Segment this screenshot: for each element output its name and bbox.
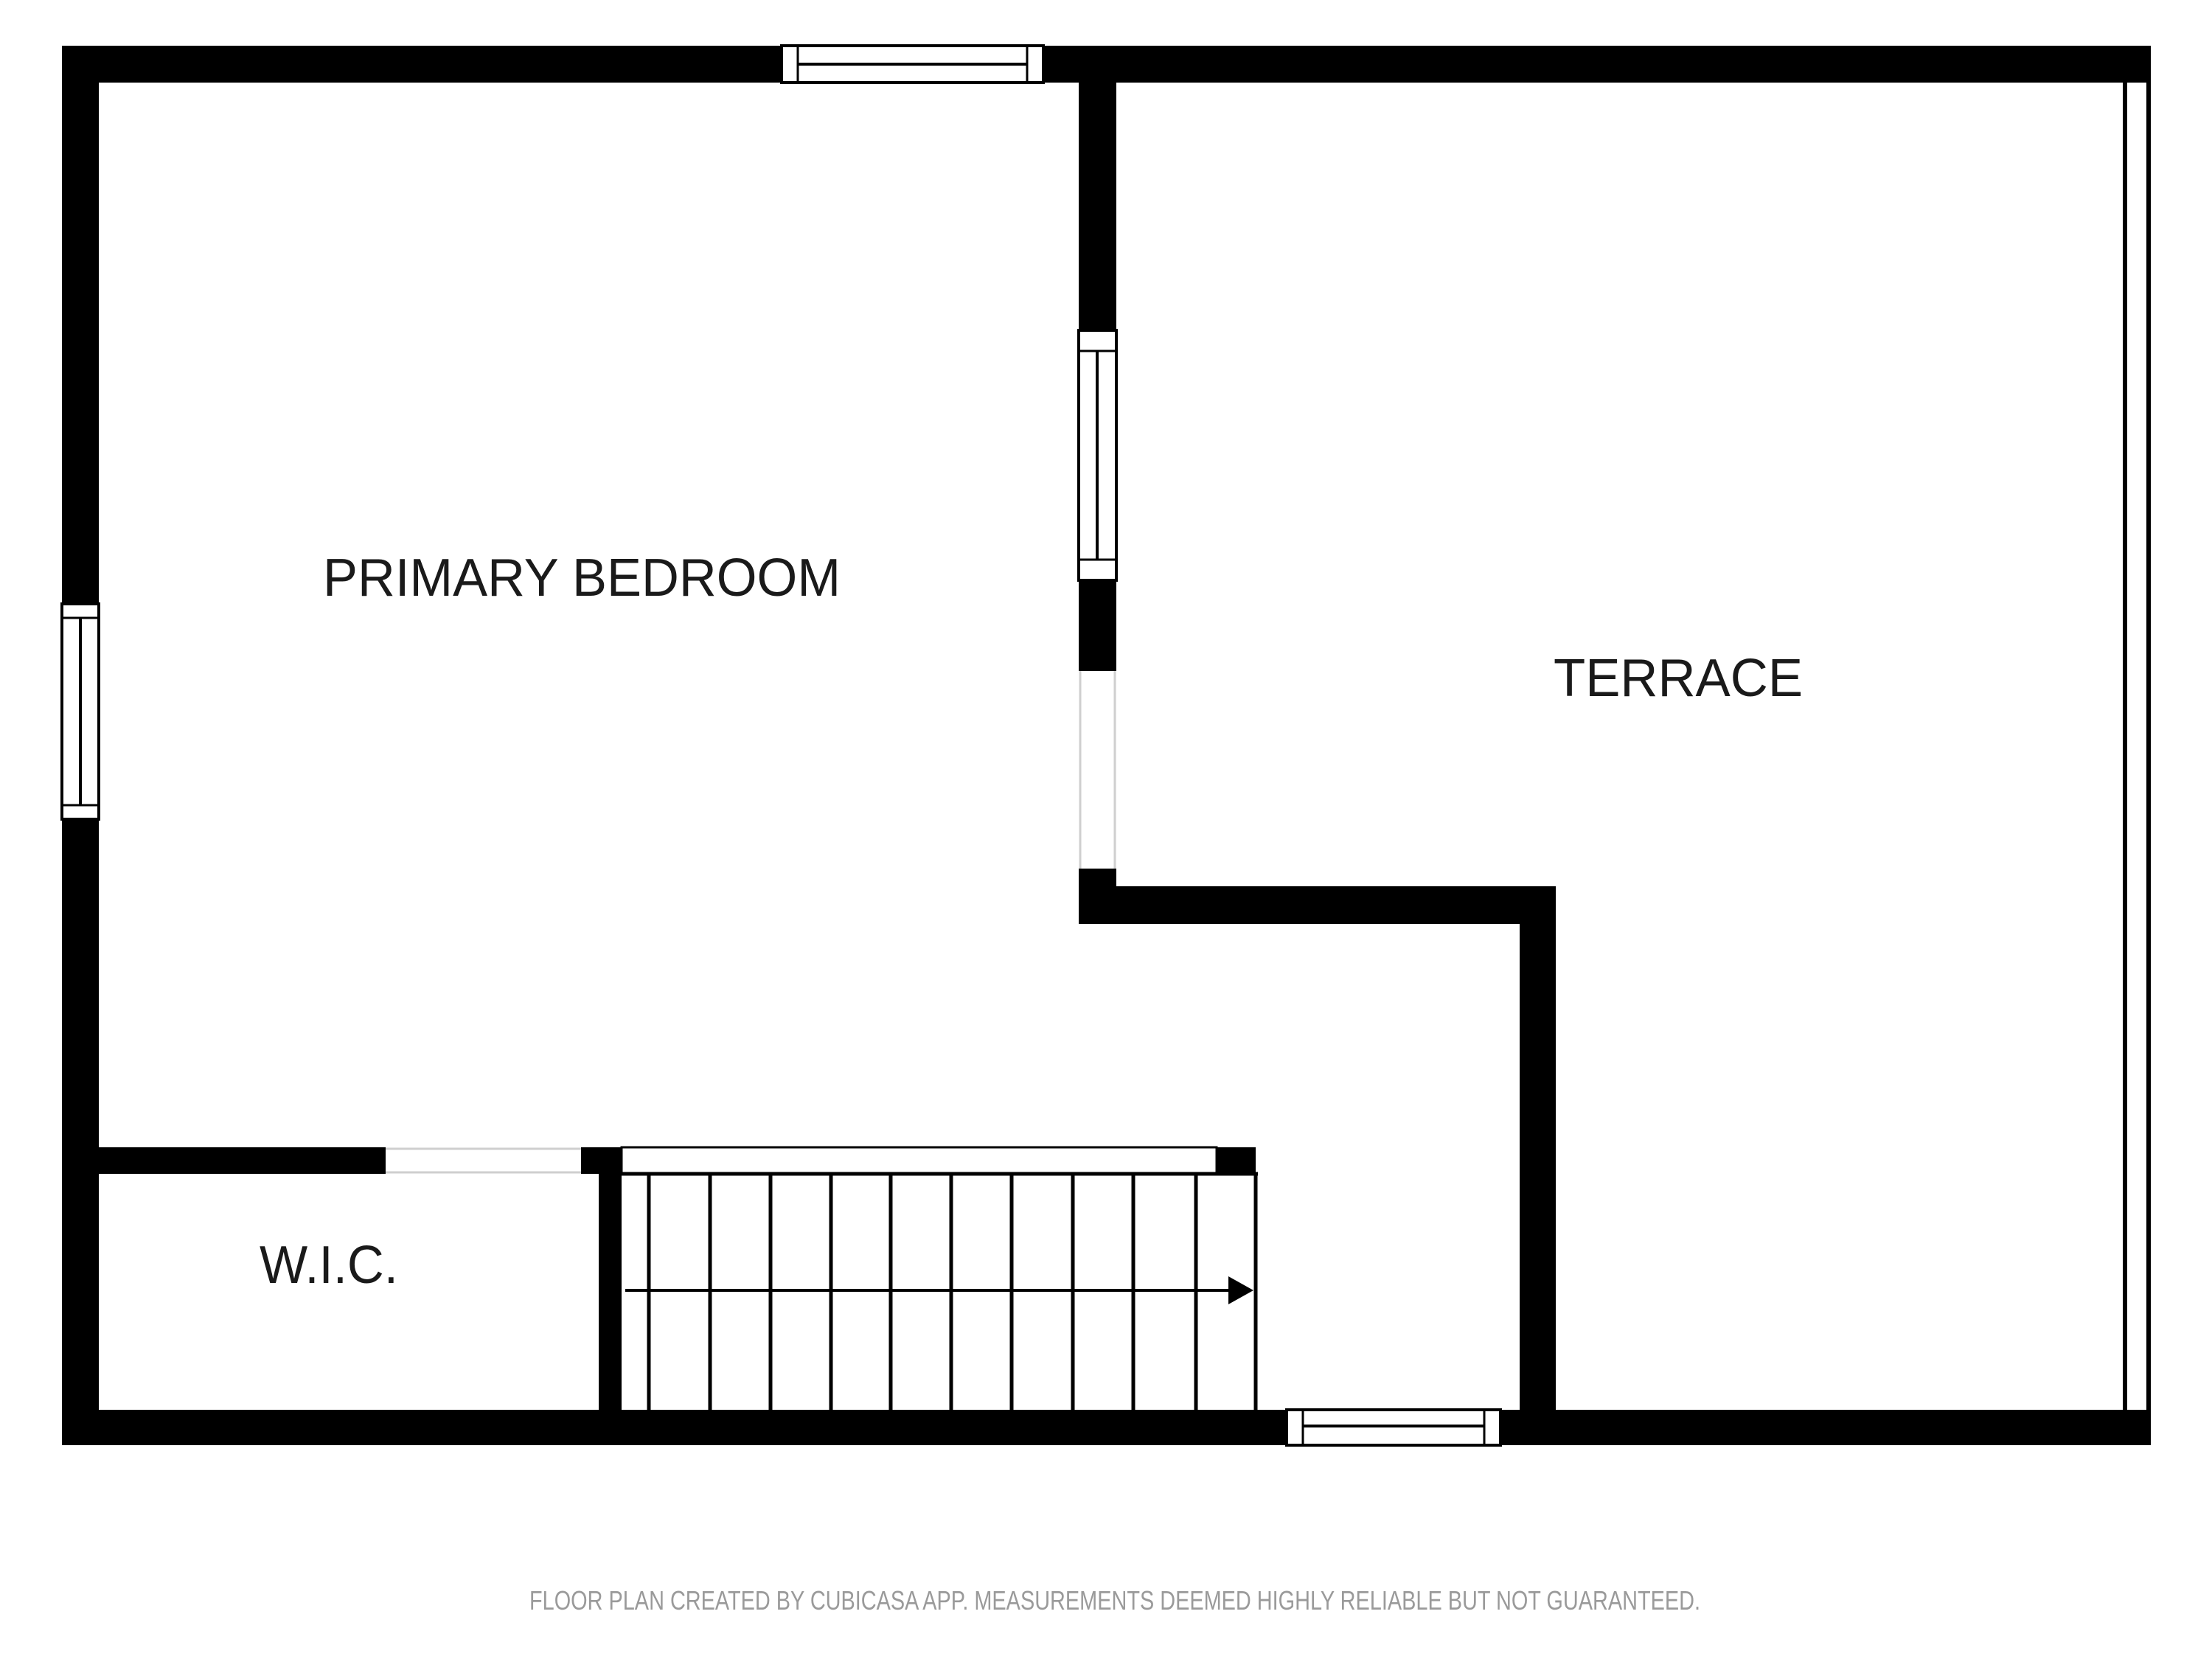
footer-attribution-text: FLOOR PLAN CREATED BY CUBICASA APP. MEAS… [529, 1585, 1700, 1615]
room-label-terrace: TERRACE [1554, 649, 1803, 708]
room-label-primary-bedroom: PRIMARY BEDROOM [323, 549, 841, 608]
wall-stair-landing-cap [1217, 1147, 1256, 1174]
wall-terrace-bottom [1079, 886, 1556, 924]
wall-exterior-bottom [62, 1410, 2151, 1445]
floor-plan-page: PRIMARY BEDROOMTERRACEW.I.C.FLOOR PLAN C… [0, 0, 2212, 1659]
wall-exterior-top [62, 46, 2151, 83]
wall-wic-top [62, 1147, 386, 1174]
floor-plan: PRIMARY BEDROOMTERRACEW.I.C.FLOOR PLAN C… [0, 0, 2212, 1659]
terrace-railing-outer-line [2146, 83, 2151, 1410]
stairs-landing [622, 1147, 1217, 1174]
wall-terrace-step [1520, 924, 1556, 1410]
room-label-wic: W.I.C. [260, 1236, 398, 1295]
wall-stairwell-left [599, 1174, 622, 1410]
terrace-railing-inner-line [2123, 83, 2127, 1410]
wall-wic-door-jamb [581, 1147, 622, 1174]
